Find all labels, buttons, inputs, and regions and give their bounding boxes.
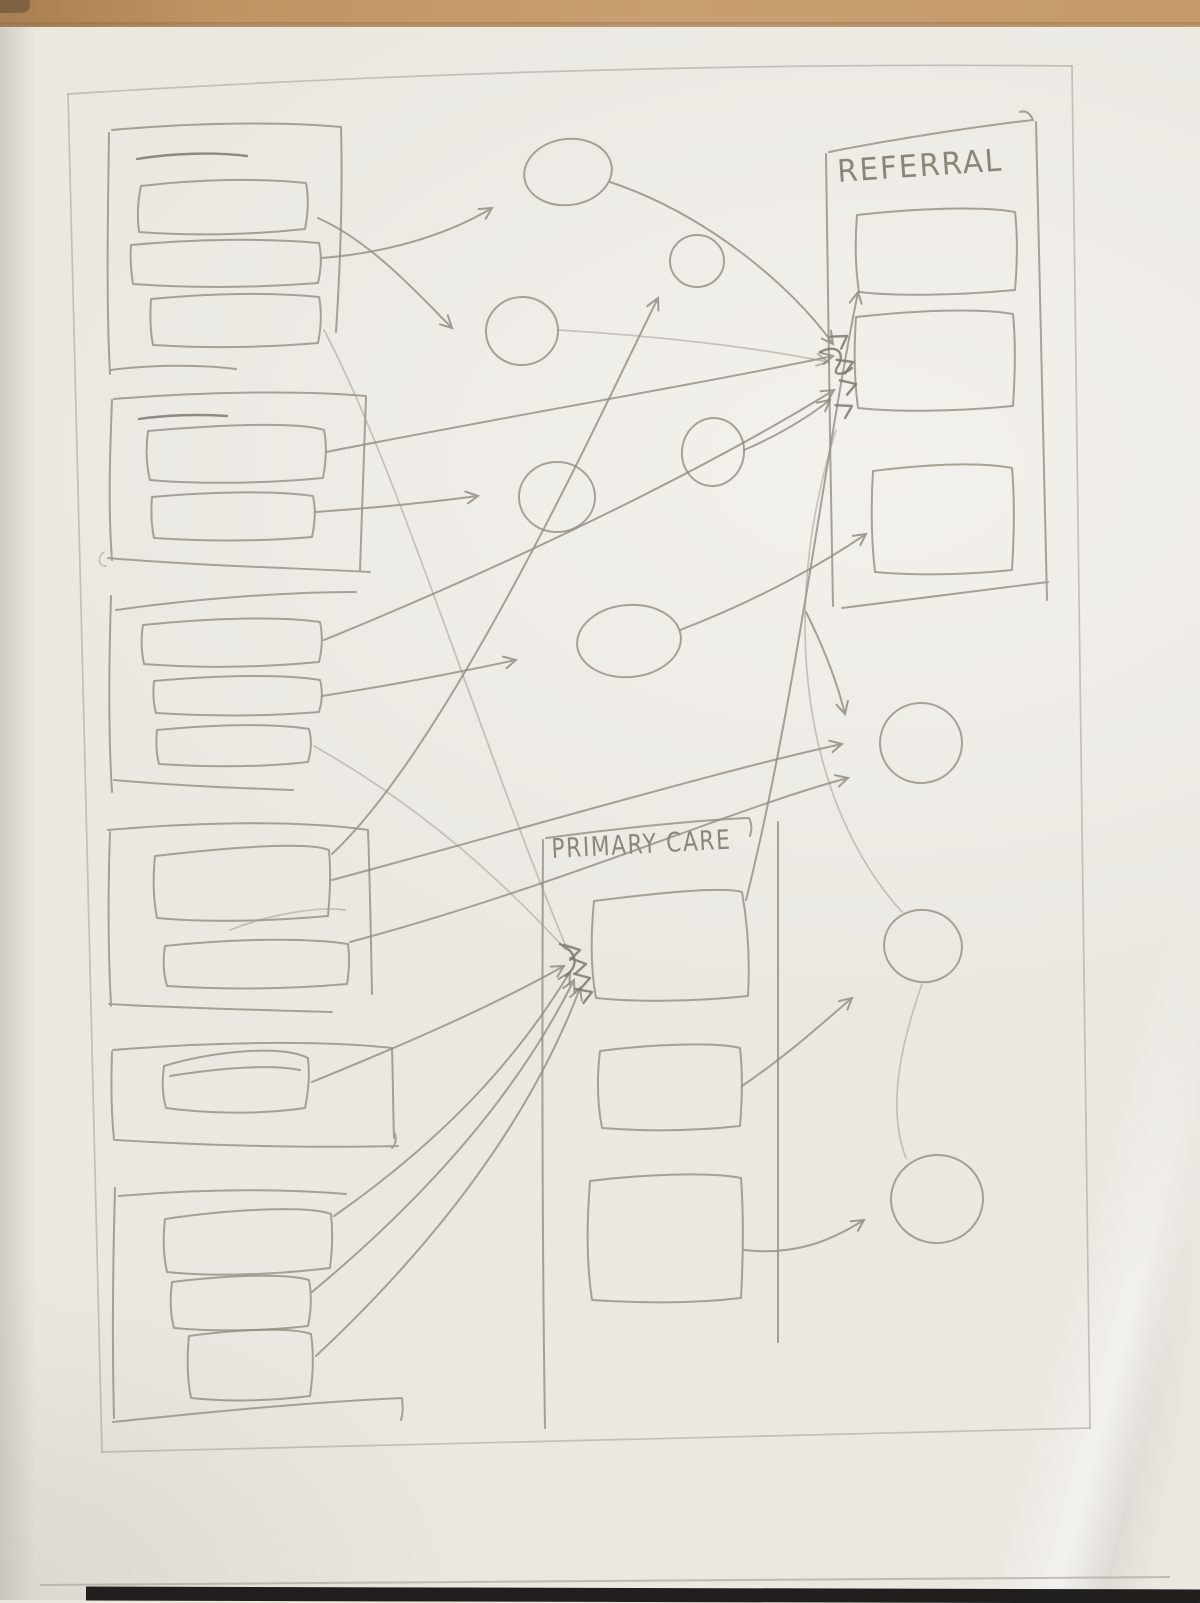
row-rect <box>171 1276 311 1331</box>
connector-arrow <box>742 998 852 1086</box>
connector-arrow <box>312 966 564 1082</box>
node-circle <box>880 703 962 783</box>
connector-arrow <box>610 182 833 344</box>
primary-care-item <box>598 1044 742 1130</box>
primary-care-label: PRIMARY CARE <box>551 825 732 865</box>
node-circle <box>670 235 724 287</box>
left-group-4 <box>108 823 372 1012</box>
connector-arrow <box>744 1220 864 1251</box>
group-outline <box>111 1043 398 1148</box>
right-circles <box>878 703 986 1246</box>
primary-care-item <box>588 1174 743 1302</box>
group-outline <box>108 123 342 374</box>
left-group-2 <box>99 392 370 572</box>
row-rect <box>188 1330 313 1401</box>
row-rect <box>164 940 349 989</box>
connector-arrow <box>680 534 866 630</box>
connector-arrow <box>332 298 658 854</box>
left-group-6 <box>113 1188 403 1422</box>
sketch-drawing: REFERRAL PRIMARY CARE <box>0 0 1200 1600</box>
referral-item <box>856 208 1017 294</box>
connector-arrow <box>806 612 845 714</box>
row-rect <box>131 240 321 287</box>
referral-arrowhead-cluster <box>820 329 858 419</box>
connector-arrow <box>322 208 492 258</box>
node-circle <box>574 601 684 682</box>
left-group-1 <box>108 123 342 374</box>
referral-item <box>872 464 1014 574</box>
connector-arrow <box>316 988 580 1356</box>
node-circle <box>520 133 616 211</box>
row-rect <box>151 492 314 540</box>
row-rect <box>153 676 321 716</box>
connector-arrow <box>558 330 828 362</box>
mid-circles <box>483 133 749 681</box>
primary-care-item <box>592 890 749 1001</box>
row-rect <box>164 1209 332 1274</box>
left-group-3 <box>109 592 356 792</box>
connector-arrow <box>322 660 516 696</box>
referral-label: REFERRAL <box>836 142 1004 189</box>
connector-arrow <box>746 292 858 900</box>
node-circle <box>483 293 562 368</box>
row-rect <box>156 725 310 766</box>
connector-arrow <box>324 390 834 640</box>
group-outline <box>108 823 372 1012</box>
border-top <box>68 65 1072 94</box>
connector-arrow <box>744 400 830 450</box>
primary-care-box: PRIMARY CARE <box>542 818 778 1428</box>
group-outline <box>113 1188 403 1422</box>
row-rect <box>150 294 320 347</box>
photo-of-pencil-sketch: REFERRAL PRIMARY CARE <box>0 0 1200 1600</box>
row-rect <box>138 180 308 235</box>
connector-line <box>324 330 565 944</box>
node-circle <box>878 904 967 988</box>
border-left <box>68 94 102 1452</box>
row-rect <box>163 1051 309 1113</box>
row-rect <box>142 618 322 666</box>
connector-line <box>314 746 566 950</box>
connector-line <box>897 984 922 1158</box>
connector-arrow <box>326 356 833 452</box>
node-circle <box>519 462 595 532</box>
connectors <box>312 182 922 1356</box>
border-bottom <box>102 1428 1090 1452</box>
connector-line <box>805 430 902 912</box>
connector-arrow <box>334 972 570 1216</box>
row-rect <box>147 425 326 483</box>
group-title-line <box>139 415 227 419</box>
box-outline <box>542 818 778 1428</box>
referral-box: REFERRAL <box>826 111 1048 608</box>
row-rect <box>154 846 330 921</box>
left-group-5 <box>111 1043 398 1148</box>
node-circle <box>678 414 749 490</box>
border-right <box>1072 66 1090 1428</box>
group-title-line <box>137 154 247 159</box>
node-circle <box>888 1152 986 1246</box>
referral-item <box>855 310 1015 410</box>
corner-hook <box>99 552 106 566</box>
